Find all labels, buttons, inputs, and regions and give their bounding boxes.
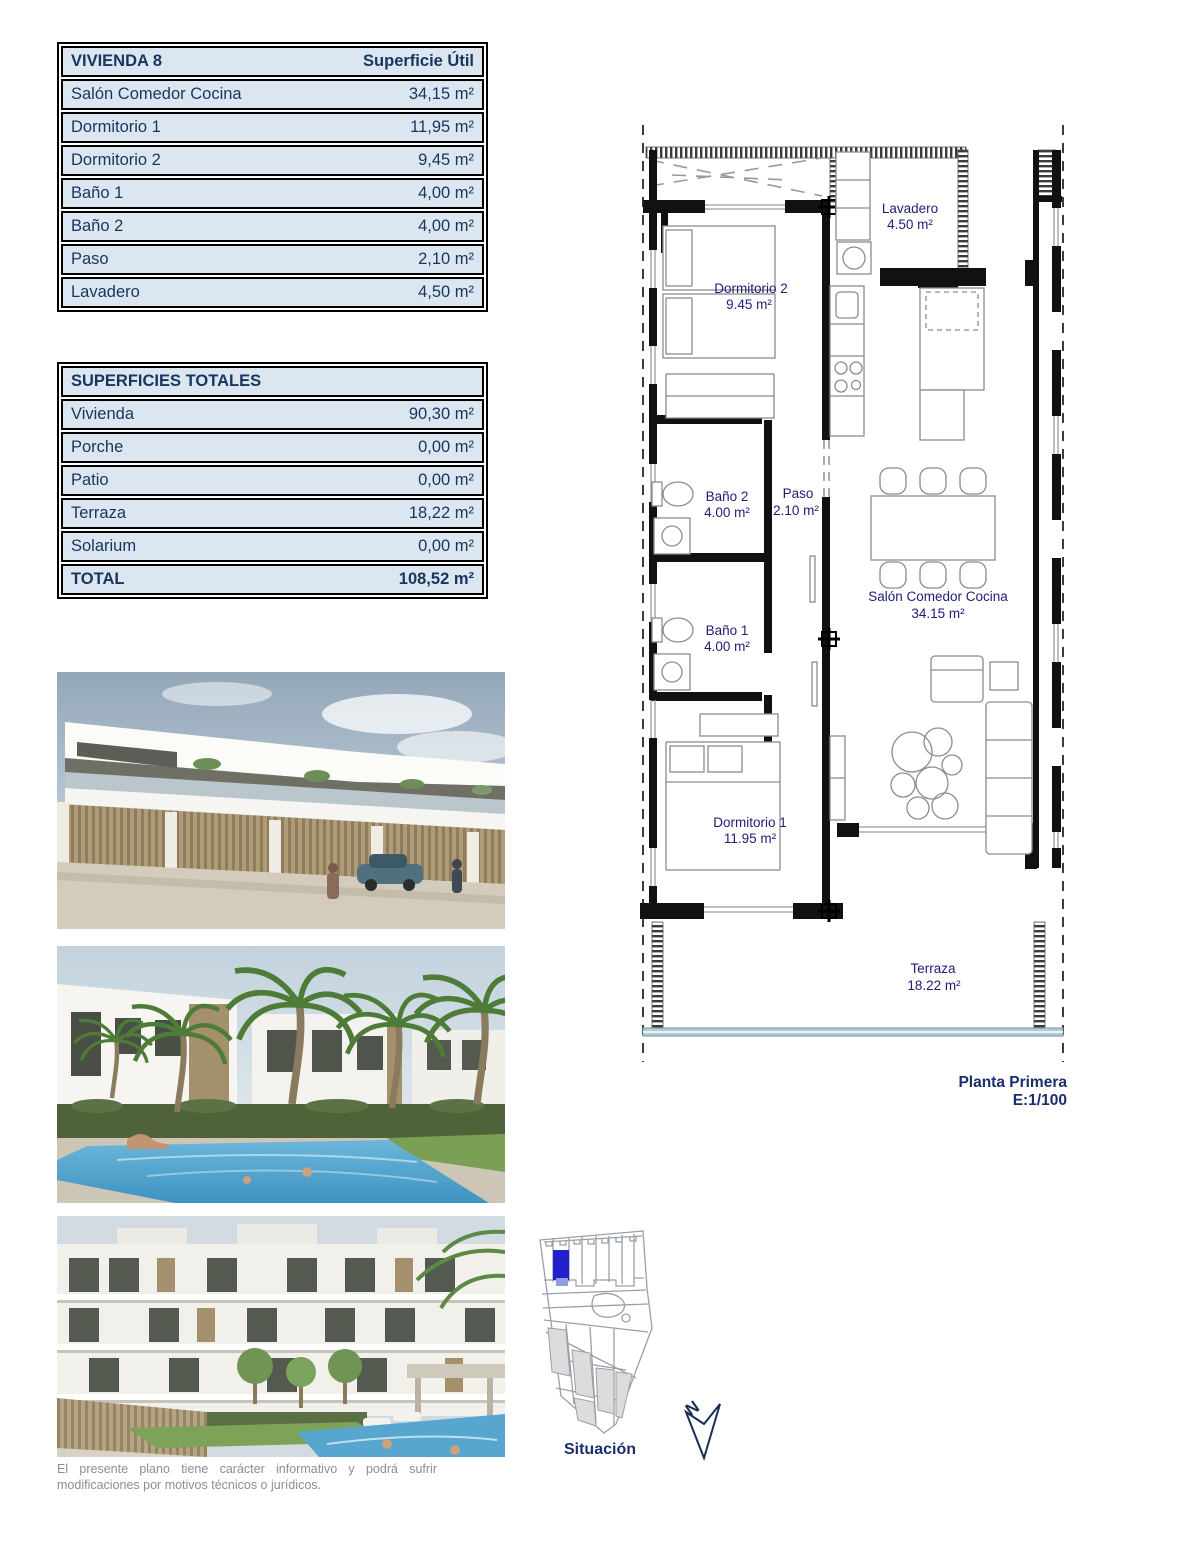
room-area-bano-1: 4.00 m² bbox=[704, 639, 750, 654]
row-value: 0,00 m² bbox=[418, 471, 474, 490]
person bbox=[327, 863, 339, 899]
row-label: Terraza bbox=[71, 504, 126, 523]
room-area-dormitorio-1: 11.95 m² bbox=[724, 831, 777, 846]
table-vivienda-title: VIVIENDA 8 bbox=[71, 52, 162, 71]
row-label: Baño 1 bbox=[71, 184, 123, 203]
row-label: Porche bbox=[71, 438, 123, 457]
render-photo-pool-palms bbox=[57, 946, 505, 1203]
row-value: 0,00 m² bbox=[418, 438, 474, 457]
row-value: 0,00 m² bbox=[418, 537, 474, 556]
render-photo-street-houses bbox=[57, 672, 505, 929]
table-totales-header: SUPERFICIES TOTALES bbox=[61, 366, 484, 397]
table-row: Terraza18,22 m² bbox=[61, 498, 484, 529]
room-label-lavadero: Lavadero bbox=[882, 201, 938, 216]
total-value: 108,52 m² bbox=[399, 570, 474, 589]
room-label-salon: Salón Comedor Cocina bbox=[868, 589, 1008, 604]
room-label-bano-1: Baño 1 bbox=[706, 623, 749, 638]
render-photo-apartments-pool-svg bbox=[57, 1216, 505, 1457]
render-photo-street-houses-svg bbox=[57, 672, 505, 929]
table-totales-title: SUPERFICIES TOTALES bbox=[71, 372, 261, 391]
table-row: Porche0,00 m² bbox=[61, 432, 484, 463]
siteplan-svg bbox=[516, 1228, 658, 1460]
row-value: 11,95 m² bbox=[410, 118, 474, 137]
row-value: 18,22 m² bbox=[409, 504, 474, 523]
table-superficies-totales: SUPERFICIES TOTALES Vivienda90,30 m² Por… bbox=[57, 362, 488, 599]
table-row: Dormitorio 29,45 m² bbox=[61, 145, 484, 176]
room-area-paso: 2.10 m² bbox=[773, 503, 819, 518]
row-label: Dormitorio 2 bbox=[71, 151, 161, 170]
person bbox=[452, 859, 462, 893]
floorplan-svg: Lavadero 4.50 m² Dormitorio 2 9.45 m² Ba… bbox=[630, 115, 1102, 1127]
row-label: Baño 2 bbox=[71, 217, 123, 236]
room-area-lavadero: 4.50 m² bbox=[887, 217, 933, 232]
row-value: 4,00 m² bbox=[418, 184, 474, 203]
row-value: 9,45 m² bbox=[418, 151, 474, 170]
room-area-salon: 34.15 m² bbox=[911, 606, 965, 621]
north-arrow: N bbox=[678, 1392, 728, 1466]
table-row: Paso2,10 m² bbox=[61, 244, 484, 275]
room-area-terraza: 18.22 m² bbox=[907, 978, 961, 993]
row-label: Lavadero bbox=[71, 283, 140, 302]
table-vivienda: VIVIENDA 8 Superficie Útil Salón Comedor… bbox=[57, 42, 488, 312]
table-row: Salón Comedor Cocina34,15 m² bbox=[61, 79, 484, 110]
table-row: Patio0,00 m² bbox=[61, 465, 484, 496]
paso-opening bbox=[824, 440, 829, 497]
row-value: 4,50 m² bbox=[418, 283, 474, 302]
table-row: Baño 14,00 m² bbox=[61, 178, 484, 209]
table-vivienda-header-right: Superficie Útil bbox=[363, 52, 474, 71]
terrace-balustrade bbox=[643, 1028, 1063, 1036]
plan-caption-line2: E:1/100 bbox=[877, 1092, 1067, 1110]
room-label-bano-2: Baño 2 bbox=[706, 489, 749, 504]
plan-caption: Planta Primera E:1/100 bbox=[877, 1074, 1067, 1110]
render-photo-apartments-pool bbox=[57, 1216, 505, 1457]
room-area-bano-2: 4.00 m² bbox=[704, 505, 750, 520]
row-label: Solarium bbox=[71, 537, 136, 556]
table-row: Baño 24,00 m² bbox=[61, 211, 484, 242]
siteplan-title: Situación bbox=[540, 1441, 660, 1459]
row-value: 2,10 m² bbox=[418, 250, 474, 269]
table-row: Dormitorio 111,95 m² bbox=[61, 112, 484, 143]
table-row-total: TOTAL108,52 m² bbox=[61, 564, 484, 595]
room-area-dormitorio-2: 9.45 m² bbox=[726, 297, 772, 312]
row-value: 4,00 m² bbox=[418, 217, 474, 236]
row-label: Paso bbox=[71, 250, 109, 269]
render-photo-pool-palms-svg bbox=[57, 946, 505, 1203]
room-label-dormitorio-2: Dormitorio 2 bbox=[714, 281, 788, 296]
row-label: Patio bbox=[71, 471, 109, 490]
room-label-paso: Paso bbox=[783, 486, 814, 501]
row-label: Salón Comedor Cocina bbox=[71, 85, 242, 104]
total-label: TOTAL bbox=[71, 570, 124, 589]
table-row: Solarium0,00 m² bbox=[61, 531, 484, 562]
row-label: Dormitorio 1 bbox=[71, 118, 161, 137]
table-row: Vivienda90,30 m² bbox=[61, 399, 484, 430]
room-label-terraza: Terraza bbox=[910, 961, 956, 976]
void-diagonals bbox=[650, 158, 822, 196]
row-value: 34,15 m² bbox=[409, 85, 474, 104]
table-row: Lavadero4,50 m² bbox=[61, 277, 484, 308]
disclaimer-text: El presente plano tiene carácter informa… bbox=[57, 1462, 437, 1493]
plan-caption-line1: Planta Primera bbox=[877, 1074, 1067, 1092]
table-vivienda-header: VIVIENDA 8 Superficie Útil bbox=[61, 46, 484, 77]
row-value: 90,30 m² bbox=[409, 405, 474, 424]
room-label-dormitorio-1: Dormitorio 1 bbox=[713, 815, 787, 830]
row-label: Vivienda bbox=[71, 405, 134, 424]
